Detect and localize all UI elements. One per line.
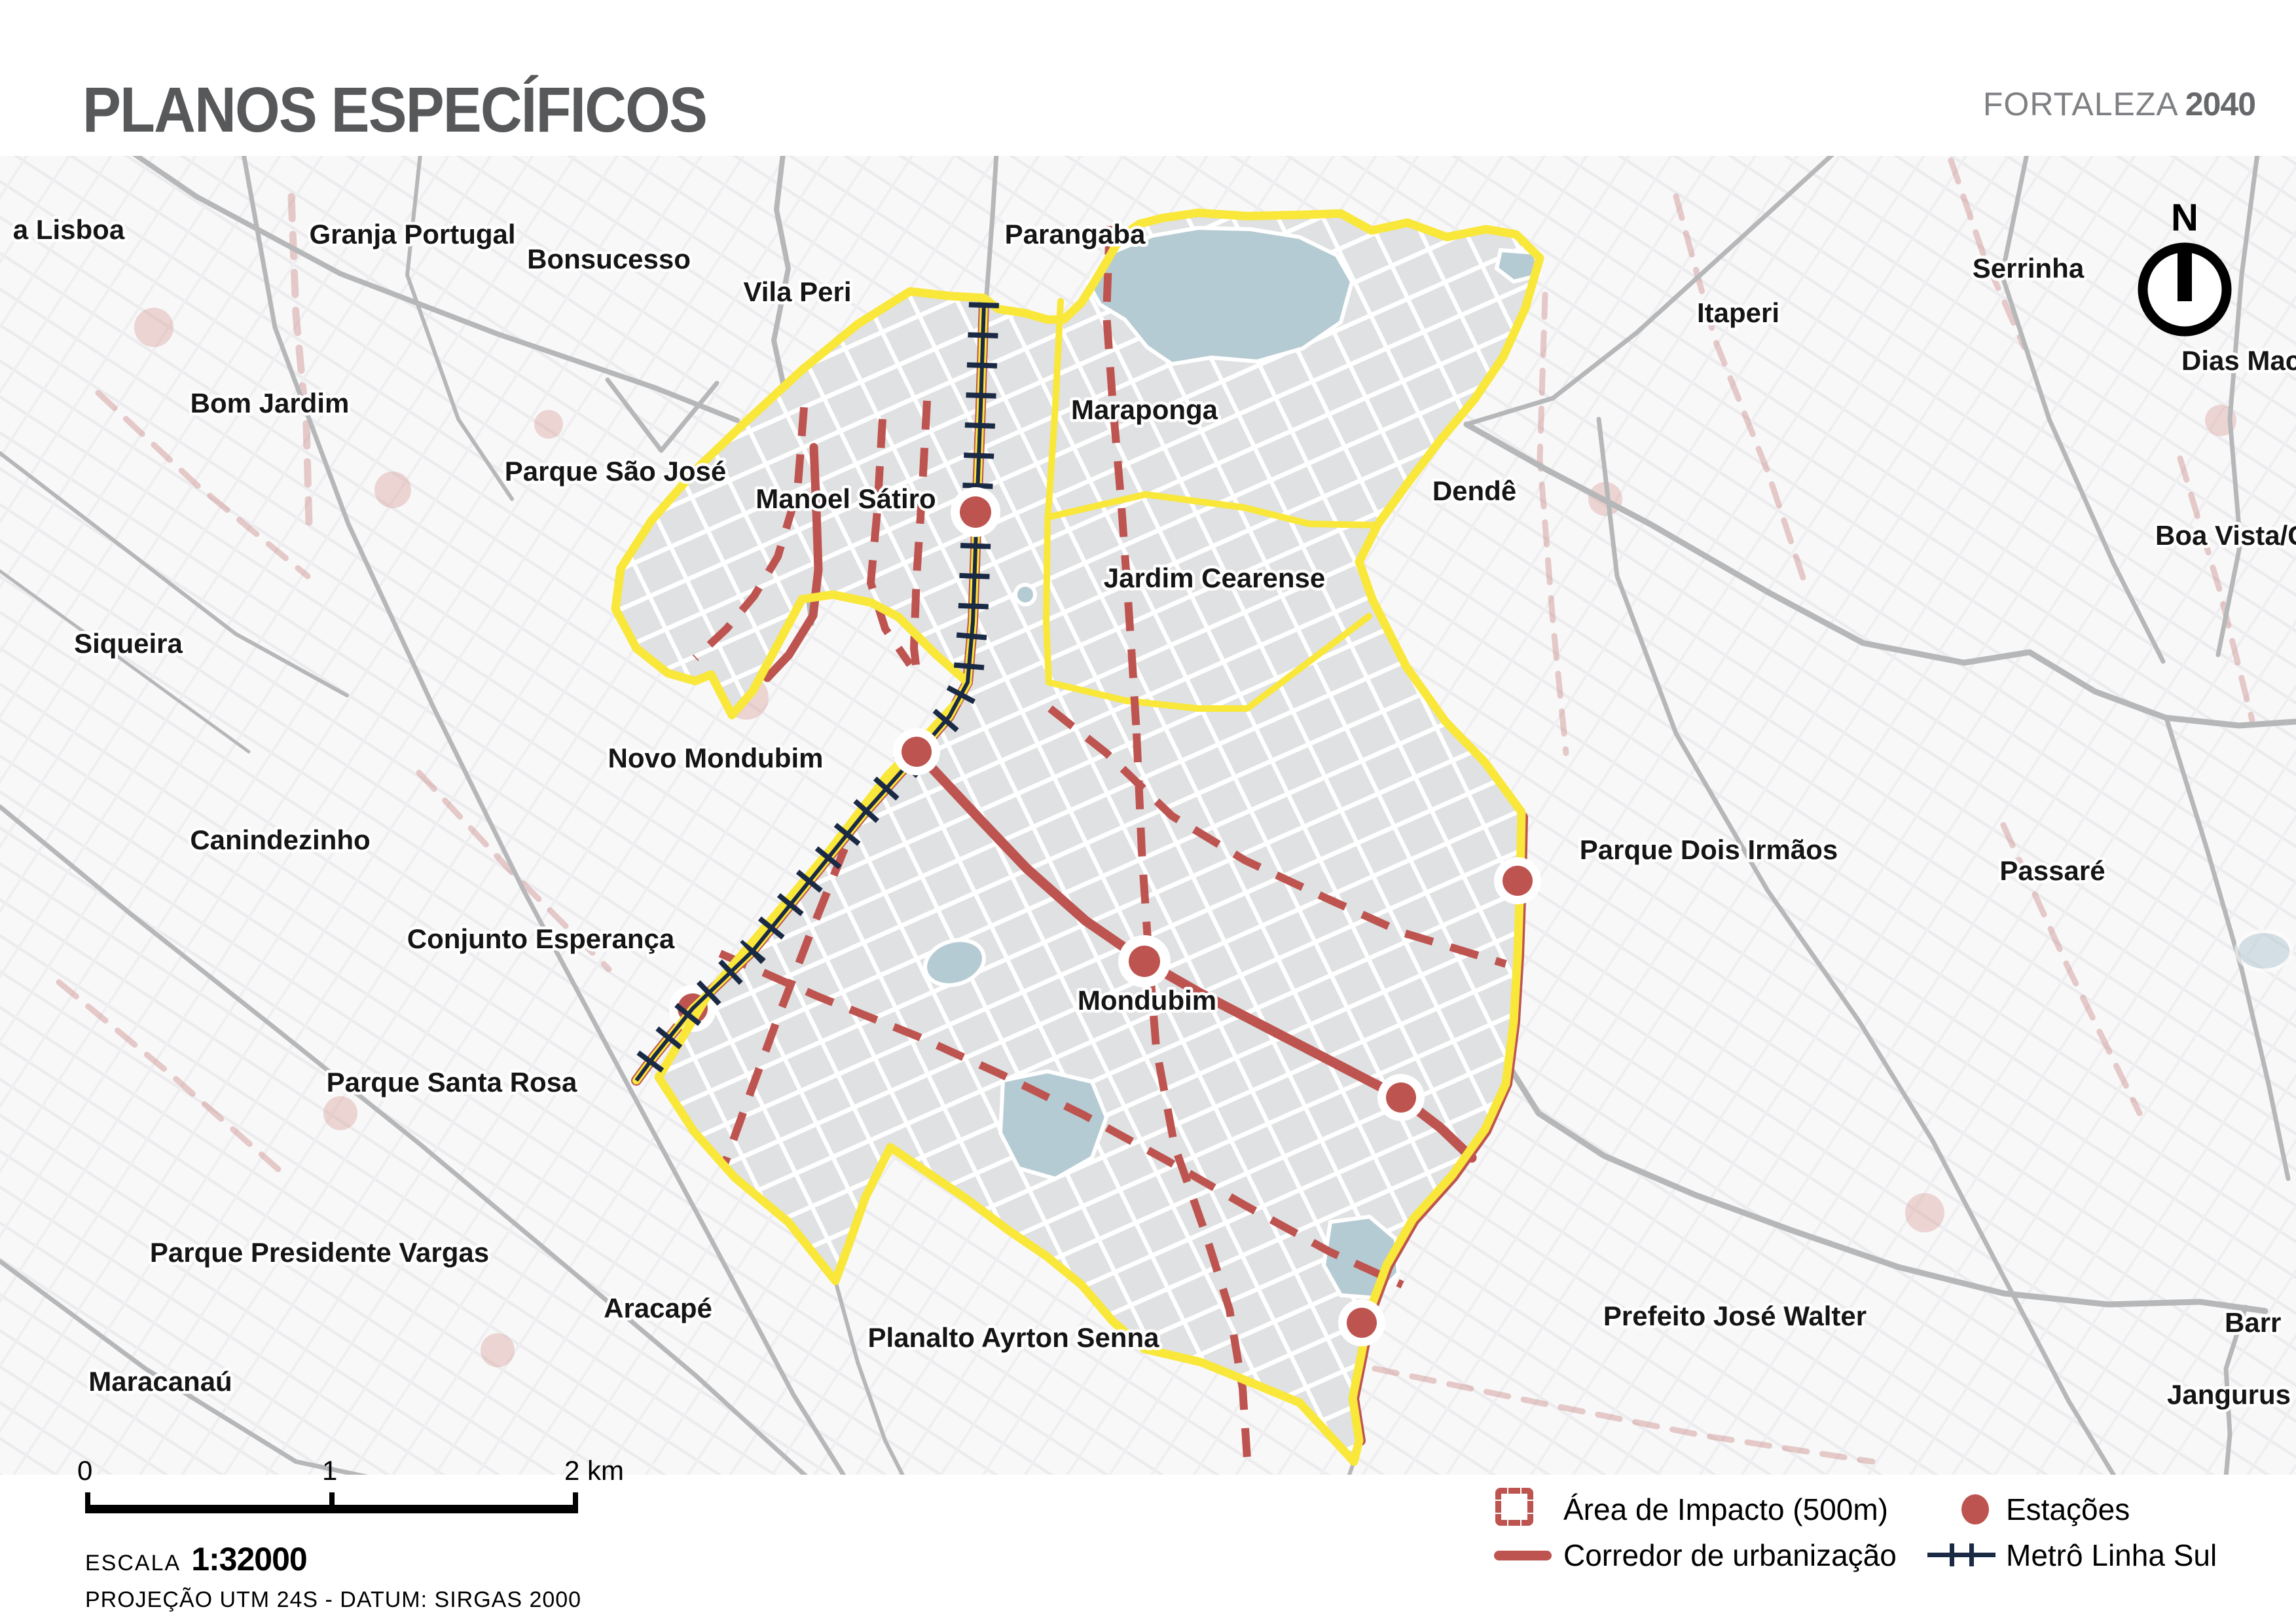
map-label-barroso: Barr [2225,1307,2281,1338]
map-label-parangaba: Parangaba [1005,219,1146,249]
map-label-parque-presidente-vargas: Parque Presidente Vargas [150,1237,489,1268]
page: PLANOS ESPECÍFICOS FORTALEZA2040 [0,0,2296,1624]
map-label-dias-macedo: Dias Macê [2181,345,2296,376]
projection-note: PROJEÇÃO UTM 24S - DATUM: SIRGAS 2000 [85,1587,581,1613]
station [1494,857,1541,904]
map-label-planalto-ayrton-senna: Planalto Ayrton Senna [868,1322,1160,1353]
map-label-bonsucesso: Bonsucesso [527,244,691,274]
corridor-swatch [1494,1551,1552,1560]
pond-passare [2236,931,2291,970]
map-label-siqueira: Siqueira [74,628,183,659]
map-label-aracape: Aracapé [604,1293,712,1323]
map-label-maraponga: Maraponga [1071,394,1218,425]
map-label-granja-portugal: Granja Portugal [309,219,515,249]
scale-tick-0: 0 [77,1455,92,1486]
map-label-mondubim: Mondubim [1078,985,1216,1016]
map-label-itaperi: Itaperi [1697,297,1779,328]
map-label-canindezinho: Canindezinho [190,824,370,855]
scale-tick-1: 1 [322,1455,337,1486]
legend-corridor-label: Corredor de urbanização [1563,1538,1897,1573]
map-label-parque-santa-rosa: Parque Santa Rosa [327,1067,577,1098]
map-label-jangurussu: Jangurus [2167,1379,2291,1410]
map-label-passare: Passaré [1999,855,2105,886]
map-label-jardim-cearense: Jardim Cearense [1104,563,1326,593]
map-label-vila-peri: Vila Peri [743,276,851,307]
legend-metro-label: Metrô Linha Sul [2006,1538,2217,1573]
map-label-bom-jardim: Bom Jardim [191,388,350,418]
map-label-manoel-satiro: Manoel Sátiro [756,483,936,514]
legend-stations-label: Estações [2006,1492,2130,1527]
map-label-serrinha: Serrinha [1973,253,2085,284]
scale-bar [85,1505,578,1513]
escala-value: 1:32000 [191,1541,307,1578]
metro-line-swatch [1927,1540,1995,1569]
map-label-conjunto-esperanca: Conjunto Esperança [407,923,675,954]
map-label-dende: Dendê [1432,475,1516,506]
legend-impact-area-label: Área de Impacto (500m) [1563,1492,1888,1527]
map-label-prefeito-jose-walter: Prefeito José Walter [1603,1301,1867,1331]
stations-swatch [1961,1494,1989,1524]
impact-area-swatch [1495,1488,1533,1526]
map-label-novo-mondubim: Novo Mondubim [608,743,824,773]
north-label: N [2171,196,2198,239]
scale-ratio: ESCALA1:32000 [85,1540,307,1578]
station [951,487,1000,537]
station [1338,1299,1385,1346]
scale-tick-2: 2 km [564,1455,624,1486]
city-map: a Lisboa Granja Portugal Bonsucesso Vila… [0,0,2296,1624]
map-label-maracanau: Maracanaú [88,1366,232,1397]
pond-manoel-satiro [1015,585,1035,604]
map-label-boa-vista: Boa Vista/Ca [2155,520,2296,551]
map-label-granja-lisboa: a Lisboa [13,214,125,245]
map-label-parque-sao-jose: Parque São José [505,456,726,487]
escala-label: ESCALA [85,1551,181,1576]
station [893,728,940,775]
station [1377,1074,1425,1121]
map-label-parque-dois-irmaos: Parque Dois Irmãos [1580,834,1838,865]
station [1118,935,1171,987]
